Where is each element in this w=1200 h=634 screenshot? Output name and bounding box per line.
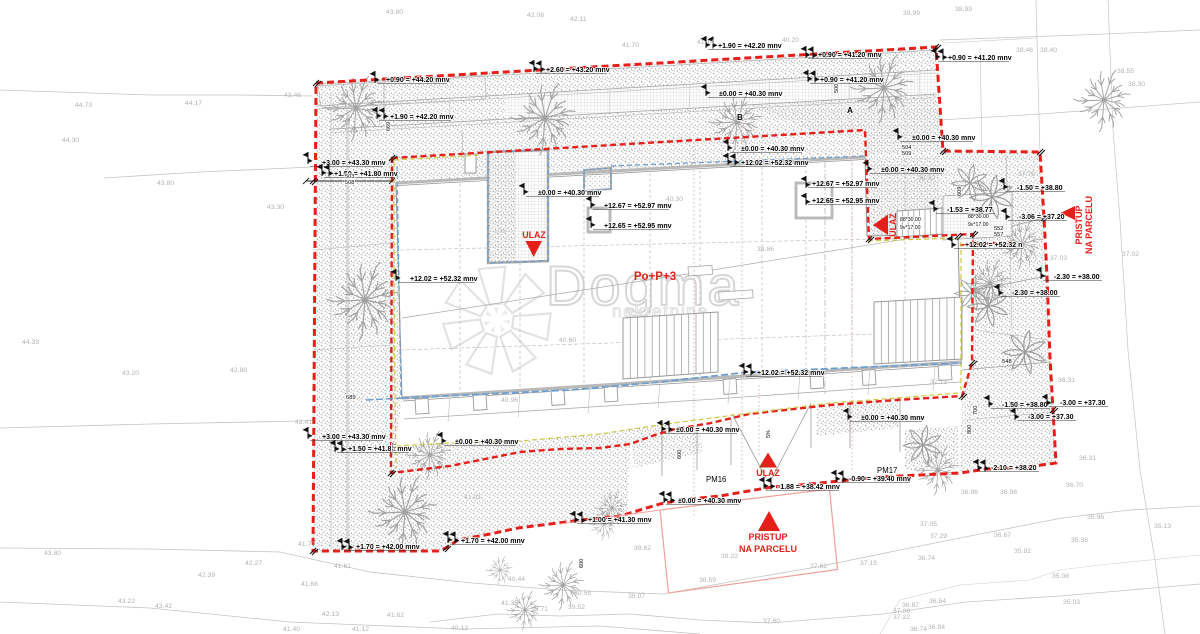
svg-text:42.39: 42.39	[198, 572, 215, 579]
svg-text:43.80: 43.80	[44, 550, 61, 557]
svg-text:800: 800	[967, 425, 973, 434]
svg-text:35.82: 35.82	[1014, 548, 1031, 555]
svg-text:37.05: 37.05	[920, 521, 937, 528]
svg-text:PM17: PM17	[877, 466, 897, 475]
svg-text:38.20: 38.20	[918, 175, 935, 182]
svg-text:ULAZ: ULAZ	[522, 230, 546, 240]
svg-text:36.70: 36.70	[1066, 482, 1083, 489]
svg-text:36.67: 36.67	[994, 532, 1011, 539]
svg-text:41.62: 41.62	[387, 612, 404, 619]
svg-text:42.13: 42.13	[322, 611, 339, 618]
svg-text:-2.10 = +38.20: -2.10 = +38.20	[991, 465, 1037, 472]
svg-text:9v*17.00: 9v*17.00	[900, 225, 921, 231]
svg-text:PRISTUP: PRISTUP	[1074, 205, 1084, 244]
svg-text:42.41: 42.41	[295, 419, 312, 426]
svg-text:+1.90 = +42.20 mnv: +1.90 = +42.20 mnv	[718, 43, 782, 50]
svg-text:609: 609	[957, 187, 963, 196]
svg-text:+3.00 = +43.30 mnv: +3.00 = +43.30 mnv	[322, 434, 386, 441]
svg-text:+12.65 = +52.95 mnv: +12.65 = +52.95 mnv	[812, 198, 880, 205]
svg-text:36.84: 36.84	[928, 624, 945, 631]
svg-text:41.70: 41.70	[298, 541, 315, 548]
svg-text:36.96: 36.96	[961, 489, 978, 496]
svg-text:9v*17.00: 9v*17.00	[968, 222, 989, 228]
svg-text:35.03: 35.03	[1063, 599, 1080, 606]
svg-text:43.20: 43.20	[122, 370, 139, 377]
svg-text:±0.00 = +40.30 mnv: ±0.00 = +40.30 mnv	[676, 427, 739, 434]
svg-text:37.03: 37.03	[1050, 255, 1067, 262]
svg-text:43.80: 43.80	[386, 9, 403, 16]
svg-text:+1.50 = +41.80 mnv: +1.50 = +41.80 mnv	[334, 171, 398, 178]
svg-text:35.38: 35.38	[1071, 537, 1088, 544]
svg-text:±0.00 = +40.30 mnv: ±0.00 = +40.30 mnv	[455, 439, 518, 446]
svg-text:±0.00 = +40.30 mnv: ±0.00 = +40.30 mnv	[538, 190, 601, 197]
svg-text:44.33: 44.33	[22, 339, 39, 346]
svg-text:39.52: 39.52	[568, 604, 585, 611]
svg-text:+12.02 = +52.32 mnv: +12.02 = +52.32 mnv	[741, 160, 809, 167]
svg-text:+12.02 = +52.32 mnv: +12.02 = +52.32 mnv	[757, 370, 825, 377]
svg-text:-3.06 = +37.20: -3.06 = +37.20	[1019, 214, 1065, 221]
svg-text:±0.00 = +40.30 mnv: ±0.00 = +40.30 mnv	[719, 91, 782, 98]
svg-text:548: 548	[1002, 359, 1012, 365]
svg-text:+0.90 = +41.20 mnv: +0.90 = +41.20 mnv	[818, 52, 882, 59]
svg-text:±0.00 = +40.30 mnv: ±0.00 = +40.30 mnv	[881, 167, 944, 174]
svg-text:39.99: 39.99	[903, 10, 920, 17]
svg-text:35.13: 35.13	[1154, 523, 1171, 530]
svg-text:43.80: 43.80	[157, 180, 174, 187]
svg-text:42.88: 42.88	[230, 367, 247, 374]
svg-text:35.96: 35.96	[1087, 514, 1104, 521]
svg-text:A: A	[847, 106, 853, 115]
svg-text:35.08: 35.08	[1052, 573, 1069, 580]
svg-text:-1.53 = +38.77: -1.53 = +38.77	[947, 207, 993, 214]
svg-text:557: 557	[994, 232, 1003, 238]
svg-text:38.40: 38.40	[1040, 47, 1057, 54]
svg-text:38.86: 38.86	[757, 246, 774, 253]
svg-text:41.61: 41.61	[334, 563, 351, 570]
svg-text:44.17: 44.17	[185, 100, 202, 107]
svg-text:+1.00 = +41.30 mnv: +1.00 = +41.30 mnv	[588, 517, 652, 524]
svg-text:42.11: 42.11	[570, 16, 587, 23]
svg-text:+1.70 = +42.00 mnv: +1.70 = +42.00 mnv	[356, 544, 420, 551]
svg-text:Po+P+3: Po+P+3	[634, 271, 676, 283]
svg-text:-0.90 = +39.40 mnv: -0.90 = +39.40 mnv	[849, 476, 911, 483]
svg-text:NA PARCELU: NA PARCELU	[739, 544, 797, 554]
svg-text:38.59: 38.59	[699, 577, 716, 584]
svg-text:39.71: 39.71	[531, 606, 548, 613]
svg-text:36.96: 36.96	[1000, 489, 1017, 496]
svg-text:+1.50 = +41.80 mnv: +1.50 = +41.80 mnv	[348, 446, 412, 453]
svg-text:43.22: 43.22	[118, 598, 135, 605]
svg-text:+12.02 = +52.32 n: +12.02 = +52.32 n	[965, 242, 1022, 249]
svg-text:41.70: 41.70	[622, 42, 639, 49]
svg-text:+1.90 = +42.20 mnv: +1.90 = +42.20 mnv	[390, 114, 454, 121]
svg-text:37.73: 37.73	[930, 379, 947, 386]
svg-text:37.15: 37.15	[860, 560, 877, 567]
svg-text:-2.30 = +38.00: -2.30 = +38.00	[1054, 274, 1100, 281]
svg-text:38.99: 38.99	[955, 6, 972, 13]
svg-text:38.30: 38.30	[1128, 81, 1145, 88]
svg-text:669: 669	[386, 122, 392, 131]
svg-text:+0.90 = +44.20 mnv: +0.90 = +44.20 mnv	[386, 77, 450, 84]
svg-text:41.35: 41.35	[501, 600, 518, 607]
svg-text:PRISTUP: PRISTUP	[748, 532, 787, 542]
svg-text:ULAZ: ULAZ	[756, 468, 780, 478]
svg-text:37.29: 37.29	[930, 533, 947, 540]
svg-text:36.31: 36.31	[1079, 455, 1096, 462]
svg-text:-2.30 = +38.00: -2.30 = +38.00	[1012, 290, 1058, 297]
svg-text:+12.02 = +52.32 mnv: +12.02 = +52.32 mnv	[410, 276, 478, 283]
svg-text:88*30.00: 88*30.00	[900, 217, 921, 223]
svg-text:-1.88 = +38.42 mnv: -1.88 = +38.42 mnv	[778, 484, 840, 491]
svg-text:38.46: 38.46	[1016, 47, 1033, 54]
svg-text:B: B	[737, 113, 743, 122]
svg-text:44.73: 44.73	[75, 102, 92, 109]
svg-text:+2.60 = +43.20 mnv: +2.60 = +43.20 mnv	[546, 67, 610, 74]
svg-text:+0.90 = +41.20 mnv: +0.90 = +41.20 mnv	[820, 77, 884, 84]
svg-text:40.58: 40.58	[574, 590, 591, 597]
svg-text:500: 500	[834, 84, 840, 93]
svg-text:37.02: 37.02	[1122, 251, 1139, 258]
svg-text:36.54: 36.54	[929, 598, 946, 605]
svg-text:±0.00 = +40.30 mnv: ±0.00 = +40.30 mnv	[912, 135, 975, 142]
svg-text:36.74: 36.74	[918, 555, 935, 562]
svg-text:508: 508	[345, 180, 354, 186]
svg-text:36.31: 36.31	[1058, 377, 1075, 384]
svg-text:40.12: 40.12	[451, 625, 468, 632]
svg-text:±0.00 = +40.30 mnv: ±0.00 = +40.30 mnv	[741, 146, 804, 153]
svg-text:40.30: 40.30	[666, 196, 683, 203]
svg-text:-1.50 = +38.80: -1.50 = +38.80	[1017, 185, 1063, 192]
svg-text:-1.50 = +38.80: -1.50 = +38.80	[1002, 402, 1048, 409]
svg-text:600: 600	[677, 450, 683, 459]
svg-text:43.42: 43.42	[155, 603, 172, 610]
svg-text:+1.70 = +42.00 mnv: +1.70 = +42.00 mnv	[461, 538, 525, 545]
svg-text:±0.00 = +40.30 mnv: ±0.00 = +40.30 mnv	[861, 415, 924, 422]
svg-text:+12.65 = +52.95 mnv: +12.65 = +52.95 mnv	[604, 223, 672, 230]
svg-text:37.22: 37.22	[893, 614, 910, 621]
svg-text:PM16: PM16	[706, 475, 726, 484]
svg-text:37.80: 37.80	[763, 618, 780, 625]
svg-text:40.20: 40.20	[782, 37, 799, 44]
svg-text:+12.67 = +52.97 mnv: +12.67 = +52.97 mnv	[812, 181, 880, 188]
svg-text:-3.00 = +37.30: -3.00 = +37.30	[1060, 400, 1106, 407]
svg-text:689: 689	[346, 395, 356, 401]
svg-text:700: 700	[973, 406, 979, 415]
svg-text:41.40: 41.40	[283, 626, 300, 633]
svg-text:41.01: 41.01	[464, 494, 481, 501]
svg-text:37.75: 37.75	[1018, 171, 1035, 178]
svg-text:509: 509	[902, 151, 911, 157]
svg-text:1.35: 1.35	[494, 229, 506, 235]
svg-text:600: 600	[579, 559, 585, 568]
svg-text:5%: 5%	[766, 430, 772, 438]
svg-text:41.68: 41.68	[301, 581, 318, 588]
svg-text:38.55: 38.55	[1117, 68, 1134, 75]
svg-text:39.07: 39.07	[628, 593, 645, 600]
svg-text:37.62: 37.62	[810, 563, 827, 570]
svg-text:42.27: 42.27	[245, 560, 262, 567]
svg-text:40.96: 40.96	[501, 397, 518, 404]
svg-text:40.44: 40.44	[508, 576, 525, 583]
svg-text:777: 777	[392, 443, 398, 452]
svg-text:39.62: 39.62	[634, 545, 651, 552]
svg-text:+0.90 = +41.20 mnv: +0.90 = +41.20 mnv	[948, 55, 1012, 62]
svg-text:41.12: 41.12	[352, 626, 369, 633]
svg-text:ULAZ: ULAZ	[888, 213, 898, 237]
svg-text:44.30: 44.30	[62, 137, 79, 144]
svg-text:±0.00 = +40.30 mnv: ±0.00 = +40.30 mnv	[678, 498, 741, 505]
svg-text:+3.00 = +43.30 mnv: +3.00 = +43.30 mnv	[322, 160, 386, 167]
svg-text:+12.67 = +52.97 mnv: +12.67 = +52.97 mnv	[604, 203, 672, 210]
svg-text:40.60: 40.60	[559, 337, 576, 344]
svg-text:36.74: 36.74	[910, 626, 927, 633]
svg-text:88*30.00: 88*30.00	[968, 214, 989, 220]
svg-text:39.22: 39.22	[721, 553, 738, 560]
svg-text:43.46: 43.46	[284, 92, 301, 99]
svg-text:NA PARCELU: NA PARCELU	[1084, 196, 1094, 254]
svg-text:41.14: 41.14	[697, 39, 714, 46]
svg-text:43.30: 43.30	[267, 204, 284, 211]
svg-text:-3.00 = +37.30: -3.00 = +37.30	[1028, 414, 1074, 421]
svg-text:42.08: 42.08	[527, 12, 544, 19]
